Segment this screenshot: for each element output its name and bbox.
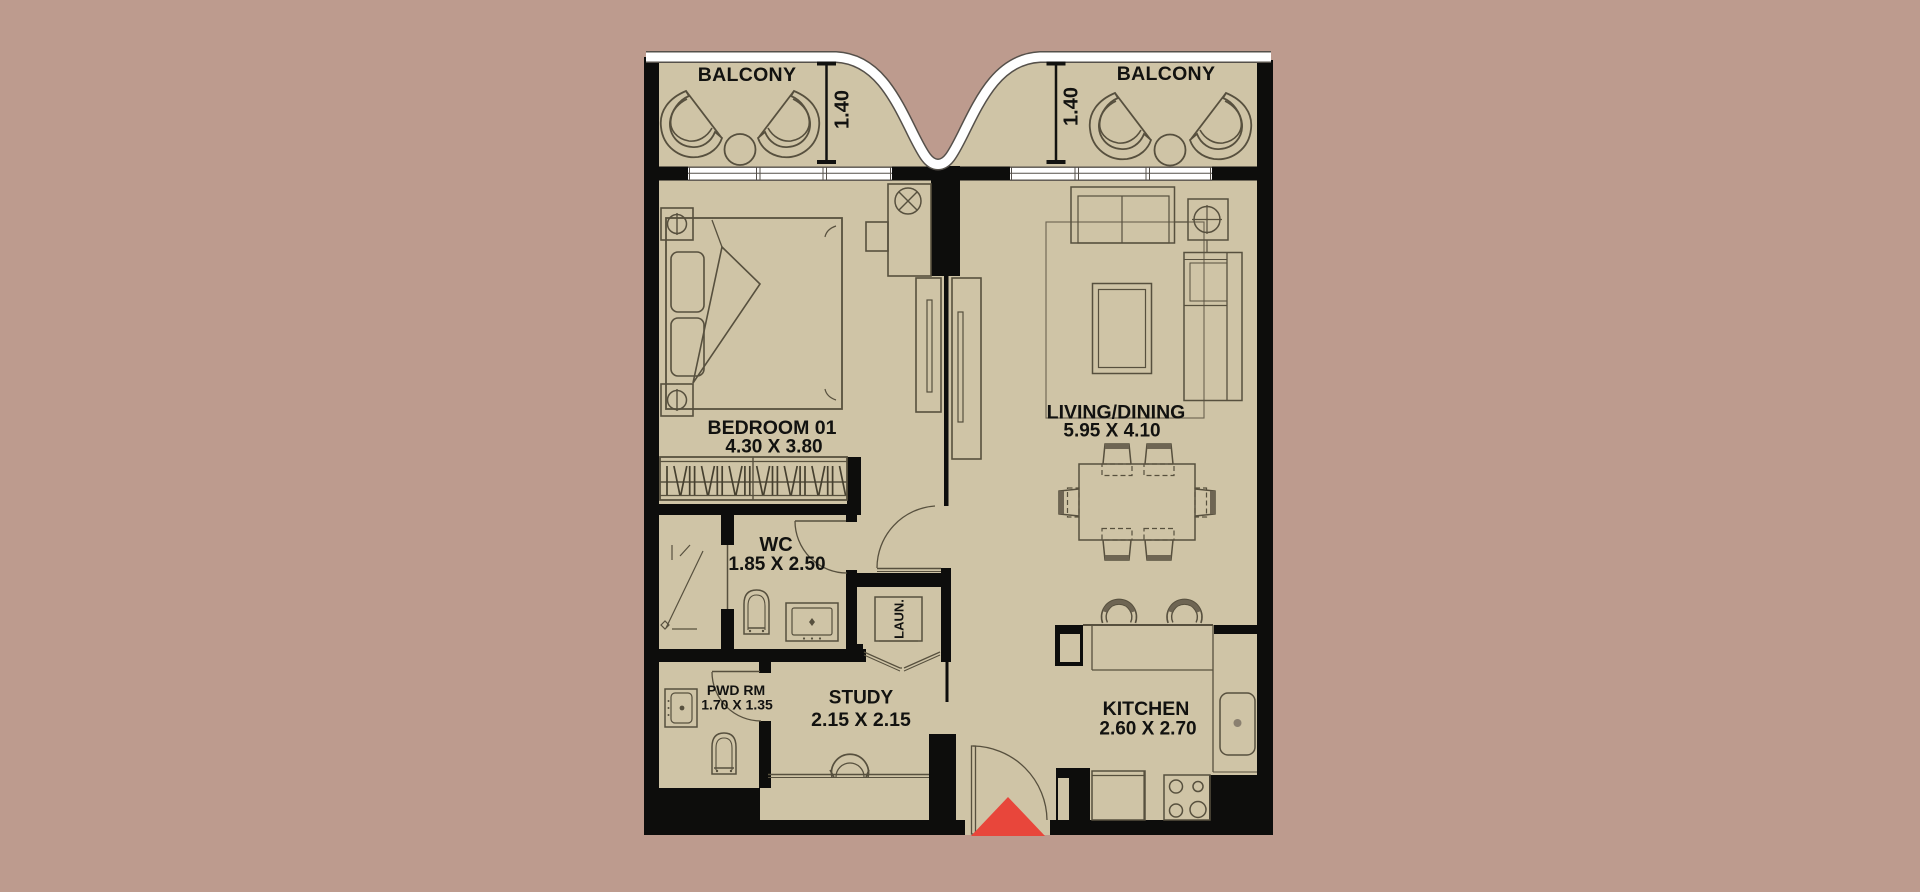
svg-text:4.30 X 3.80: 4.30 X 3.80	[725, 437, 822, 458]
svg-text:BALCONY: BALCONY	[698, 64, 797, 86]
svg-text:5.95 X 4.10: 5.95 X 4.10	[1063, 421, 1160, 442]
svg-text:2.60 X 2.70: 2.60 X 2.70	[1099, 719, 1196, 740]
svg-text:1.70 X 1.35: 1.70 X 1.35	[701, 697, 773, 713]
svg-text:2.15 X 2.15: 2.15 X 2.15	[811, 709, 911, 731]
svg-text:STUDY: STUDY	[829, 688, 894, 709]
svg-text:LAUN.: LAUN.	[892, 599, 907, 639]
svg-text:1.40: 1.40	[832, 90, 854, 129]
svg-text:WC: WC	[759, 534, 792, 556]
svg-text:1.40: 1.40	[1061, 87, 1083, 126]
svg-text:BALCONY: BALCONY	[1117, 63, 1216, 85]
svg-text:KITCHEN: KITCHEN	[1103, 698, 1190, 720]
svg-text:1.85 X 2.50: 1.85 X 2.50	[728, 554, 825, 575]
